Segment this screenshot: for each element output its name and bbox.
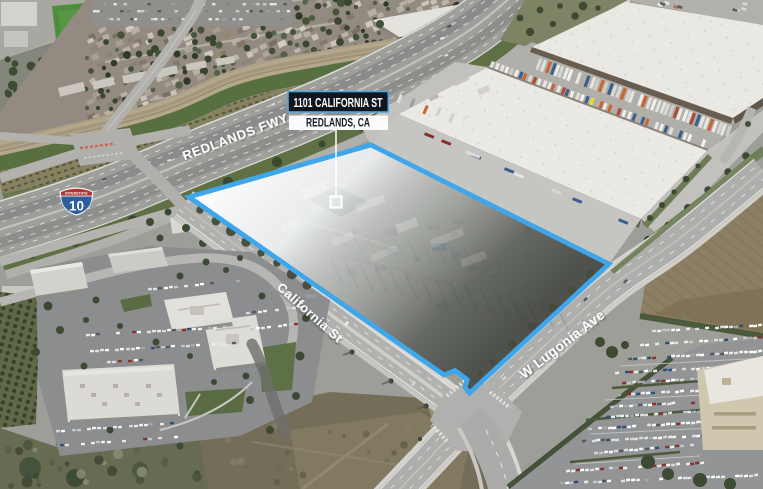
svg-text:10: 10 — [69, 198, 84, 213]
svg-text:INTERSTATE: INTERSTATE — [65, 191, 88, 195]
svg-text:REDLANDS, CA: REDLANDS, CA — [306, 117, 370, 130]
svg-text:1101 CALIFORNIA ST: 1101 CALIFORNIA ST — [294, 95, 383, 110]
